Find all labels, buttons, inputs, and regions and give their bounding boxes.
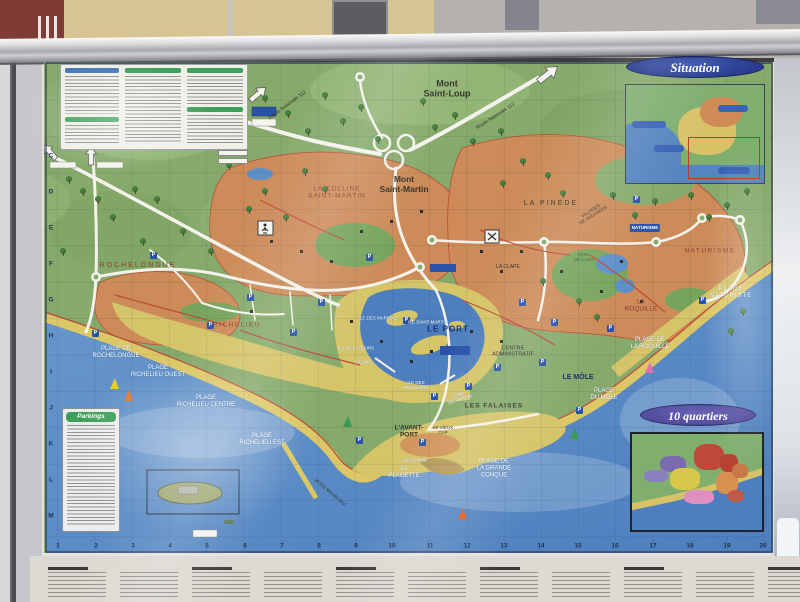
index-column	[624, 572, 682, 600]
quartier-zone	[732, 464, 748, 478]
mini-map-label-pill	[632, 121, 666, 128]
index-column	[264, 572, 322, 600]
index-column	[696, 572, 754, 600]
legend-header	[65, 68, 119, 73]
mini-map-town	[700, 97, 742, 127]
situation-title-oval: Situation	[626, 56, 764, 78]
legend-header	[125, 68, 181, 73]
index-column-header	[480, 567, 520, 570]
parkings-title: Parkings	[66, 412, 116, 422]
index-column	[552, 572, 610, 600]
index-column	[120, 572, 178, 600]
street-index-strip	[30, 556, 800, 602]
index-column	[336, 572, 394, 600]
mini-map-label-pill	[718, 167, 750, 174]
legend-lines	[65, 76, 119, 114]
legend-box	[60, 64, 248, 150]
index-column-header	[624, 567, 664, 570]
index-column-header	[48, 567, 88, 570]
legend-lines	[65, 125, 119, 145]
index-column	[48, 572, 106, 600]
quartiers-mini-map	[630, 432, 764, 532]
mini-map-label-pill	[654, 145, 684, 152]
index-column	[768, 572, 800, 600]
quartier-zone	[728, 490, 744, 502]
index-column	[408, 572, 466, 600]
situation-inset: Situation	[618, 54, 772, 188]
hiking-trail-icon	[258, 221, 273, 235]
legend-header	[187, 107, 243, 112]
mini-map-label-pill	[718, 105, 748, 112]
photo-of-map-board: PPPPPPPPPPPPPPPPPPPP Mont Saint-LoupMont…	[0, 0, 800, 602]
legend-note-box	[218, 150, 248, 156]
quartiers-inset: 10 quartiers	[628, 404, 768, 534]
parkings-lines	[67, 425, 115, 527]
quartiers-title: 10 quartiers	[641, 405, 755, 427]
legend-lines	[187, 115, 243, 143]
index-column	[480, 572, 538, 600]
legend-lines	[187, 76, 243, 104]
x-marker-icon	[485, 230, 499, 243]
quartier-zone	[684, 490, 714, 504]
legend-lines	[125, 76, 181, 144]
legend-header	[65, 117, 119, 122]
legend-note-box	[218, 158, 248, 164]
quartier-zone	[644, 470, 668, 482]
quartier-zone	[670, 468, 700, 490]
quartiers-title-oval: 10 quartiers	[640, 404, 756, 426]
index-column-header	[768, 567, 800, 570]
index-column	[192, 572, 250, 600]
situation-title: Situation	[627, 57, 763, 79]
index-column-header	[192, 567, 232, 570]
parkings-legend: Parkings	[62, 408, 120, 532]
legend-header	[187, 68, 243, 73]
index-column-header	[336, 567, 376, 570]
situation-mini-map	[625, 84, 765, 184]
